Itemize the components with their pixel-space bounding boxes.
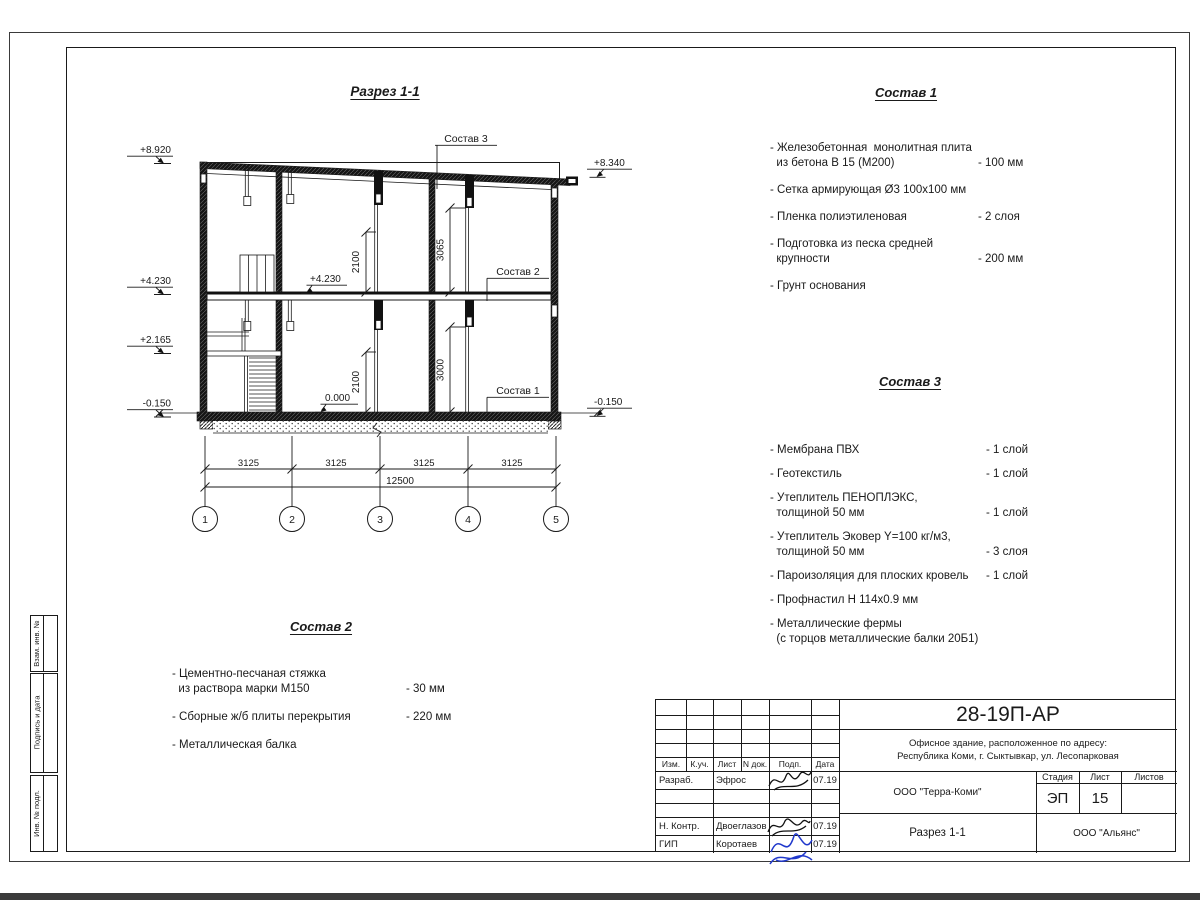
tb-project: Офисное здание, расположенное по адресу:… (839, 729, 1177, 771)
margin-stamp-label: Взам. инв. № (31, 616, 44, 671)
spec-item-text: - Железобетонная монолитная плита из бет… (770, 141, 978, 171)
tb-role: Разраб. (656, 771, 713, 789)
spec-item-value: - 3 слоя (986, 545, 1050, 560)
tb-col-data: Дата (811, 757, 839, 771)
spec-list: - Железобетонная монолитная плита из бет… (770, 141, 1042, 294)
margin-stamp-label: Инв. № подл. (31, 776, 44, 851)
tb-col-kuch: К.уч. (686, 757, 713, 771)
signature-gip (768, 826, 818, 870)
title-block: Изм. К.уч. Лист N док. Подп. Дата Разраб… (655, 699, 1176, 852)
spec-item-text: - Металлические фермы (с торцов металлич… (770, 617, 986, 647)
spec-item: - Подготовка из песка средней крупности … (770, 237, 1042, 267)
spec-item-value: - 220 мм (406, 710, 470, 725)
grid-bubble-label: 2 (289, 514, 295, 526)
tb-stage-label: Стадия (1036, 771, 1079, 783)
spec-item: - Сборные ж/б плиты перекрытия - 220 мм (172, 710, 470, 725)
ground-slab (156, 410, 601, 438)
elevation-label: -0.150 (143, 399, 172, 410)
spec-item-text: - Мембрана ПВХ (770, 443, 986, 458)
tb-sheet-label: Лист (1079, 771, 1121, 783)
elevation-label: 0.000 (325, 393, 350, 404)
elevation-label: +8.920 (140, 145, 171, 156)
spec-item-text: - Профнастил Н 114х0.9 мм (770, 593, 986, 608)
tb-col-list: Лист (713, 757, 741, 771)
spec-block-sostav3: Состав 3 - Мембрана ПВХ - 1 слой - Геоте… (770, 374, 1050, 656)
spec-list: - Цементно-песчаная стяжка из раствора м… (172, 667, 470, 753)
dim-label: 3125 (501, 458, 522, 469)
spec-item-text: - Цементно-песчаная стяжка из раствора м… (172, 667, 406, 697)
spec-block-sostav1: Состав 1 - Железобетонная монолитная пли… (770, 85, 1042, 306)
dim-label: 3125 (413, 458, 434, 469)
tb-role: Н. Контр. (656, 817, 713, 835)
spec-item-value: - 100 мм (978, 156, 1042, 171)
section-drawing: +8.920 +4.230 +2.165 -0.150 +8.340 -0.15… (115, 134, 645, 540)
tb-role: ГИП (656, 835, 713, 853)
spec-item: - Цементно-песчаная стяжка из раствора м… (172, 667, 470, 697)
spec-title: Состав 2 (172, 619, 470, 636)
spec-item-value: - 1 слой (986, 506, 1050, 521)
spec-item-text: - Металлическая балка (172, 738, 406, 753)
margin-stamp-podpis: Подпись и дата (30, 673, 58, 773)
tb-project-line1: Офисное здание, расположенное по адресу: (909, 737, 1107, 750)
dim-label: 12500 (386, 476, 414, 487)
tb-col-izm: Изм. (656, 757, 686, 771)
spec-item: - Утеплитель ПЕНОПЛЭКС, толщиной 50 мм -… (770, 491, 1050, 521)
spec-item: - Профнастил Н 114х0.9 мм (770, 593, 1050, 608)
spec-item: - Металлическая балка (172, 738, 470, 753)
elevation-label: +4.230 (140, 276, 171, 287)
leader-label: Состав 1 (496, 385, 540, 397)
dim-label: 3000 (436, 358, 447, 381)
tb-sheets-label: Листов (1121, 771, 1177, 783)
tb-sheet-value: 15 (1079, 783, 1121, 813)
margin-stamp-vzam: Взам. инв. № (30, 615, 58, 672)
tb-name: Коротаев (713, 835, 769, 853)
spec-item: - Мембрана ПВХ - 1 слой (770, 443, 1050, 458)
grid-bubble-label: 5 (553, 514, 559, 526)
margin-stamp-label: Подпись и дата (31, 674, 44, 772)
elevation-label: +8.340 (594, 158, 625, 169)
margin-stamp-inv: Инв. № подл. (30, 775, 58, 852)
section-title: Разрез 1-1 (310, 84, 460, 99)
spec-item-text: - Пленка полиэтиленовая (770, 210, 978, 225)
tb-name: Эфрос (713, 771, 769, 789)
tb-sheets-value (1121, 783, 1177, 813)
tb-date: 07.19 (811, 771, 839, 789)
elevation-label: +4.230 (310, 274, 341, 285)
tb-contractor: ООО "Альянс" (1036, 813, 1177, 853)
spec-item-text: - Утеплитель ПЕНОПЛЭКС, толщиной 50 мм (770, 491, 986, 521)
spec-item-text: - Сборные ж/б плиты перекрытия (172, 710, 406, 725)
dim-label: 3125 (238, 458, 259, 469)
spec-item-value: - 30 мм (406, 682, 470, 697)
staircase (207, 255, 281, 412)
screen-bottom-bar (0, 893, 1200, 900)
drawing-sheet: Разрез 1-1 (0, 0, 1200, 900)
spec-item-text: - Подготовка из песка средней крупности (770, 237, 978, 267)
floor-slab (207, 292, 551, 300)
door-frames-stair (244, 166, 294, 331)
grid-bubble-label: 1 (202, 514, 208, 526)
spec-item: - Пароизоляция для плоских кровель - 1 с… (770, 569, 1050, 584)
spec-block-sostav2: Состав 2 - Цементно-песчаная стяжка из р… (172, 619, 470, 766)
spec-item-value: - 2 слоя (978, 210, 1042, 225)
spec-item: - Утеплитель Эковер Y=100 кг/м3, толщино… (770, 530, 1050, 560)
dim-label: 2100 (351, 250, 362, 273)
spec-item-value: - 200 мм (978, 252, 1042, 267)
dimension-chain (201, 436, 561, 506)
spec-item-text: - Сетка армирующая Ø3 100х100 мм (770, 183, 978, 198)
spec-item: - Сетка армирующая Ø3 100х100 мм (770, 183, 1042, 198)
tb-col-ndok: N док. (741, 757, 769, 771)
tb-sheet-title: Разрез 1-1 (839, 813, 1036, 853)
spec-item: - Пленка полиэтиленовая - 2 слоя (770, 210, 1042, 225)
spec-item-value: - 1 слой (986, 443, 1050, 458)
spec-item: - Геотекстиль - 1 слой (770, 467, 1050, 482)
leader-label: Состав 3 (444, 134, 488, 145)
spec-item-text: - Грунт основания (770, 279, 978, 294)
signature-razrab (766, 764, 814, 796)
dim-label: 3065 (436, 238, 447, 261)
elevation-label: +2.165 (140, 335, 171, 346)
leader-lines (435, 145, 549, 413)
leader-label: Состав 2 (496, 266, 540, 278)
elevation-marks-right (587, 169, 632, 416)
tb-stage-value: ЭП (1036, 783, 1079, 813)
spec-item: - Железобетонная монолитная плита из бет… (770, 141, 1042, 171)
spec-item: - Грунт основания (770, 279, 1042, 294)
spec-item-text: - Пароизоляция для плоских кровель (770, 569, 986, 584)
dim-label: 3125 (325, 458, 346, 469)
spec-title: Состав 1 (770, 85, 1042, 102)
tb-org: ООО "Терра-Коми" (839, 771, 1036, 813)
spec-item-value: - 1 слой (986, 467, 1050, 482)
spec-list: - Мембрана ПВХ - 1 слой - Геотекстиль - … (770, 443, 1050, 647)
elevation-label: -0.150 (594, 397, 623, 408)
tb-project-line2: Республика Коми, г. Сыктывкар, ул. Лесоп… (897, 750, 1119, 763)
tb-doc-code: 28-19П-АР (839, 700, 1177, 729)
dim-label: 2100 (351, 370, 362, 393)
spec-item: - Металлические фермы (с торцов металлич… (770, 617, 1050, 647)
spec-item-text: - Геотекстиль (770, 467, 986, 482)
spec-item-text: - Утеплитель Эковер Y=100 кг/м3, толщино… (770, 530, 986, 560)
tb-name: Двоеглазов (713, 817, 769, 835)
grid-bubble-label: 3 (377, 514, 383, 526)
spec-title: Состав 3 (770, 374, 1050, 391)
spec-item-value: - 1 слой (986, 569, 1050, 584)
grid-bubble-label: 4 (465, 514, 471, 526)
roof-slab (200, 162, 578, 190)
